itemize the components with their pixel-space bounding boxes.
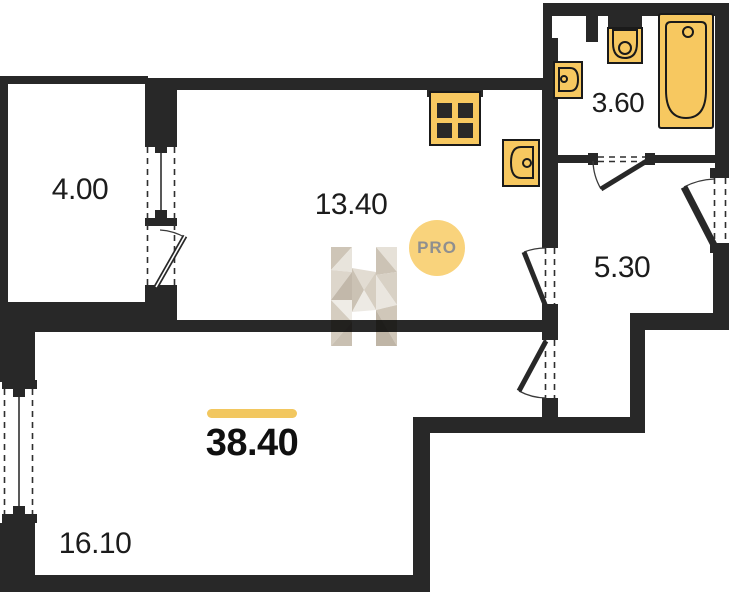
pro-badge-label: PRO bbox=[417, 238, 457, 258]
door-swing-icon-bathroom bbox=[593, 157, 650, 189]
room-label-kitchen-living: 13.40 bbox=[291, 190, 411, 220]
room-label-bathroom: 3.60 bbox=[568, 89, 668, 117]
room-label-balcony: 4.00 bbox=[30, 175, 130, 205]
stove-icon bbox=[427, 88, 483, 145]
total-area-accent-bar bbox=[207, 409, 297, 418]
floorplan-stage: 4.00 13.40 3.60 5.30 16.10 38.40 PRO bbox=[0, 0, 729, 600]
total-area-label: 38.40 bbox=[192, 424, 312, 462]
toilet-icon bbox=[608, 14, 642, 63]
window-icon-bedroom bbox=[5, 389, 33, 514]
kitchen-sink-icon bbox=[503, 140, 539, 186]
room-label-hallway: 5.30 bbox=[572, 253, 672, 283]
door-swing-icon-balcony bbox=[156, 230, 186, 287]
door-swing-icon-kitchen bbox=[524, 248, 555, 307]
door-swing-icon-bedroom bbox=[519, 340, 555, 398]
room-label-bedroom: 16.10 bbox=[35, 529, 155, 559]
door-swing-icon-entry bbox=[684, 178, 726, 249]
pro-badge: PRO bbox=[409, 220, 465, 276]
